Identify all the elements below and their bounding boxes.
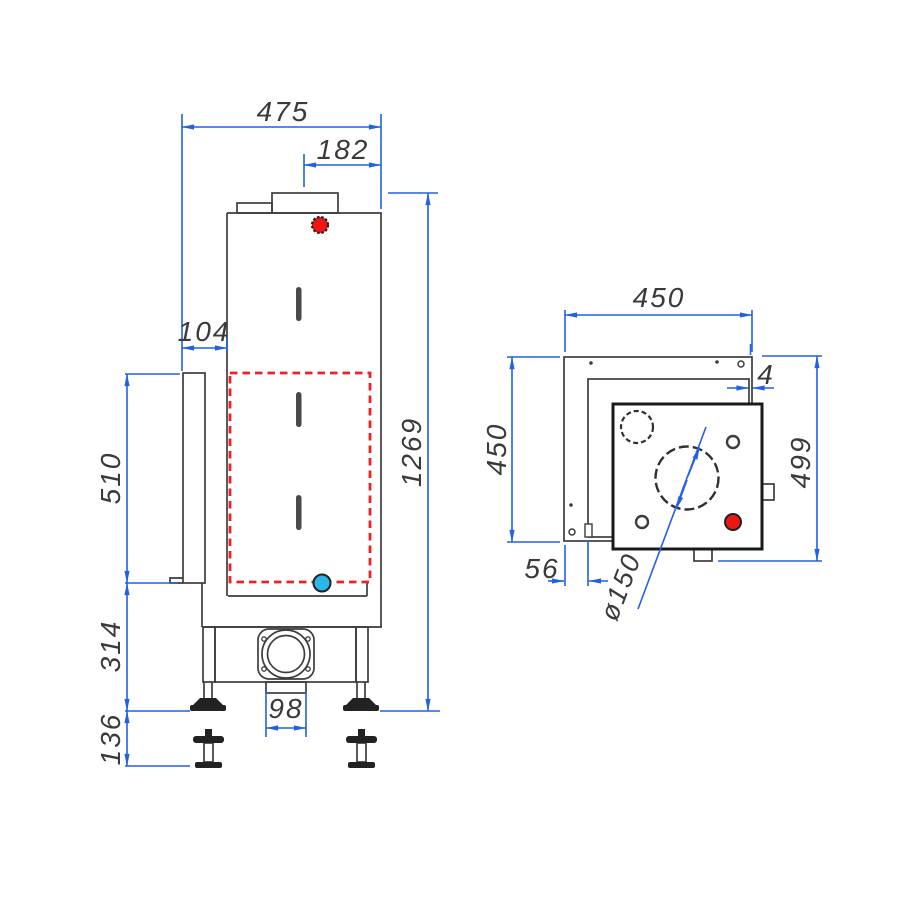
- red-marker-front-top: [312, 217, 328, 233]
- dim-frame-depth: 450: [481, 423, 512, 476]
- flange-bolt-hole: [262, 637, 266, 641]
- fan-flange-plate: [258, 629, 314, 679]
- dim-total-depth: 499: [785, 436, 816, 489]
- flange-bolt-hole: [262, 667, 266, 671]
- dim-flue-diameter: ø150: [594, 549, 647, 625]
- dim-flue-offset: 182: [317, 134, 370, 165]
- drawing-canvas: 475 182 104 510 314 136 1269 98 450 450 …: [0, 0, 900, 900]
- dim-duct-width: 98: [268, 693, 303, 724]
- front-glass-panel: [183, 373, 205, 583]
- technical-drawing: 475 182 104 510 314 136 1269 98 450 450 …: [0, 0, 900, 900]
- spare-foot-stem-right: [357, 743, 366, 762]
- dim-total-height: 1269: [396, 417, 427, 487]
- dim-door-height: 510: [95, 452, 126, 505]
- bottom-tab: [694, 549, 712, 561]
- spare-foot-right: [358, 729, 365, 737]
- cyan-marker-front-bottom: [314, 575, 331, 592]
- flange-bolt-hole: [306, 637, 310, 641]
- flue-collar: [272, 193, 338, 213]
- flange-bolt-hole: [306, 667, 310, 671]
- front-view-geometry: [170, 193, 382, 762]
- dim-front-offset: 56: [524, 553, 559, 584]
- dim-front-frame-depth: 104: [178, 316, 231, 347]
- air-vent-slots: [296, 287, 302, 530]
- dim-base-height: 314: [95, 620, 126, 673]
- top-step: [237, 203, 272, 213]
- fan-inner-circle: [268, 636, 305, 673]
- spare-foot-stem-left: [204, 743, 213, 762]
- body-outline: [227, 213, 381, 627]
- body-lower-left: [202, 583, 382, 627]
- body-floor-line: [228, 583, 367, 596]
- left-leg: [203, 627, 215, 682]
- dim-feet-height: 136: [95, 713, 126, 766]
- fan-outer-circle: [262, 630, 310, 678]
- plate-slot: [585, 524, 592, 537]
- spare-foot-left: [205, 729, 212, 737]
- bottom-duct-stub: [266, 682, 306, 693]
- dim-frame-width: 450: [633, 282, 686, 313]
- dim-rear-gap: 4: [757, 359, 775, 390]
- right-leg: [356, 627, 368, 682]
- red-marker-top-view: [725, 514, 741, 530]
- dim-total-width: 475: [257, 96, 310, 127]
